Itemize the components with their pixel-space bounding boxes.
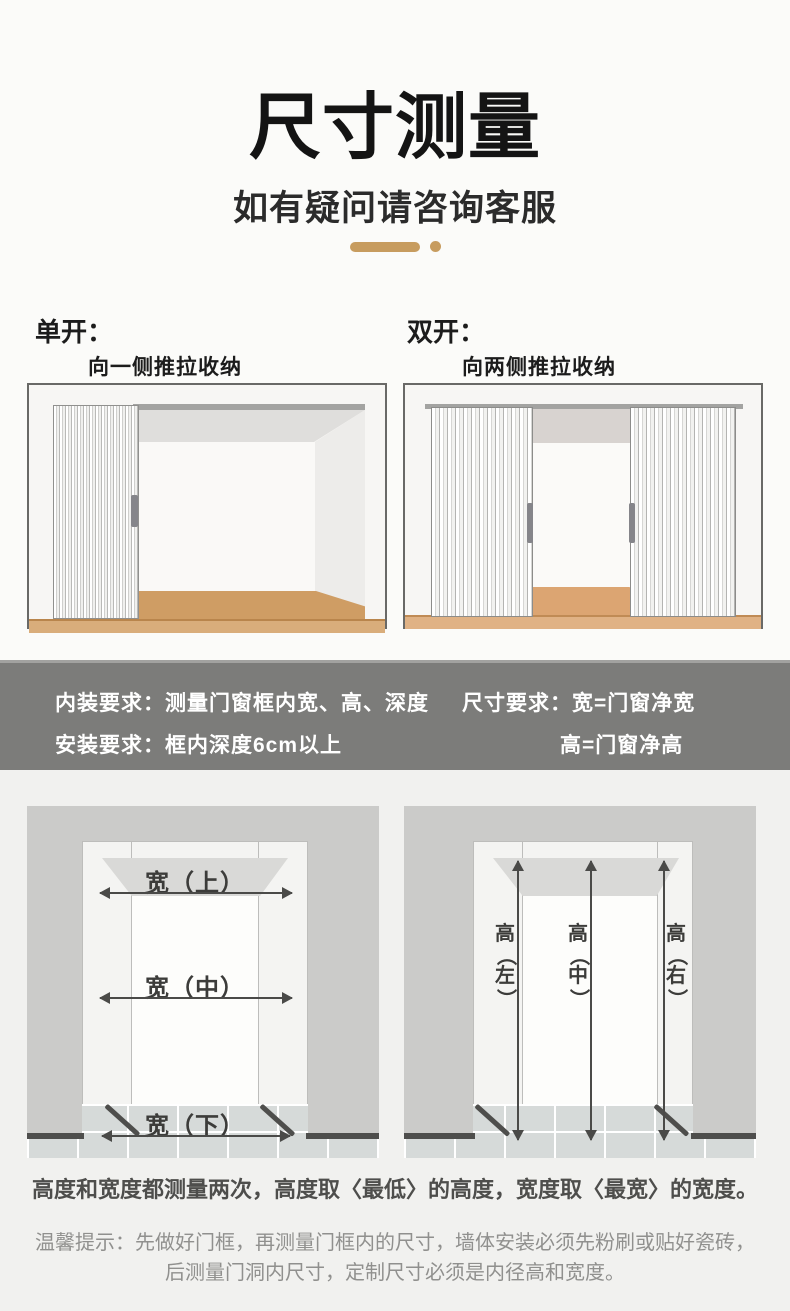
warm-tip-line2: 后测量门洞内尺寸，定制尺寸必须是内径高和宽度。 bbox=[0, 1256, 790, 1285]
back-wall bbox=[531, 443, 630, 587]
lintel-shadow bbox=[531, 409, 630, 443]
infographic-page: 尺寸测量 如有疑问请咨询客服 单开： 向一侧推拉收纳 双开： 向两侧推拉收纳 内… bbox=[0, 0, 790, 1311]
double-open-caption: 向两侧推拉收纳 bbox=[462, 351, 616, 381]
divider-bar bbox=[350, 242, 420, 252]
height-middle-label: 高（中） bbox=[563, 924, 593, 1009]
divider-dot bbox=[430, 241, 441, 252]
single-open-room-diagram bbox=[27, 383, 387, 629]
width-middle-arrow bbox=[100, 997, 292, 999]
install-requirement: 安装要求：框内深度6cm以上 bbox=[55, 729, 342, 759]
door-handle bbox=[131, 495, 138, 527]
accordion-door-right bbox=[630, 407, 736, 617]
single-open-label: 单开： bbox=[35, 312, 113, 349]
door-handle-right bbox=[629, 503, 635, 543]
page-title: 尺寸测量 bbox=[0, 68, 790, 173]
front-floor-strip bbox=[405, 615, 761, 629]
single-open-caption: 向一侧推拉收纳 bbox=[88, 351, 242, 381]
baseboard-right bbox=[691, 1133, 756, 1139]
baseboard-left bbox=[27, 1133, 84, 1139]
height-left-label: 高（左） bbox=[490, 924, 520, 1009]
door-track bbox=[133, 404, 365, 410]
double-open-label: 双开： bbox=[407, 312, 485, 349]
accordion-door-folded bbox=[53, 405, 139, 619]
baseboard-right bbox=[306, 1133, 379, 1139]
divider bbox=[0, 241, 790, 252]
door-handle-left bbox=[527, 503, 533, 543]
interior-requirement: 内装要求：测量门窗框内宽、高、深度 bbox=[55, 687, 429, 717]
baseboard-left bbox=[404, 1133, 475, 1139]
wall-right bbox=[693, 1104, 756, 1133]
front-floor-strip bbox=[29, 619, 385, 633]
width-measure-panel: 宽（上） 宽（中） 宽（下） bbox=[27, 806, 379, 1158]
wall-right bbox=[308, 1104, 379, 1133]
right-wall bbox=[315, 410, 365, 610]
requirements-band: 内装要求：测量门窗框内宽、高、深度 安装要求：框内深度6cm以上 尺寸要求：宽=… bbox=[0, 660, 790, 770]
double-open-room-diagram bbox=[403, 383, 763, 629]
back-wall bbox=[133, 442, 315, 591]
page-subtitle: 如有疑问请咨询客服 bbox=[0, 180, 790, 231]
warm-tip-line1: 温馨提示：先做好门框，再测量门框内的尺寸，墙体安装必须先粉刷或贴好瓷砖， bbox=[0, 1226, 790, 1255]
wall-left bbox=[27, 1104, 82, 1133]
height-requirement: 高=门窗净高 bbox=[560, 729, 683, 759]
measure-note: 高度和宽度都测量两次，高度取〈最低〉的高度，宽度取〈最宽〉的宽度。 bbox=[0, 1172, 790, 1204]
width-top-arrow bbox=[100, 892, 292, 894]
wall-left bbox=[404, 1104, 473, 1133]
size-requirement: 尺寸要求：宽=门窗净宽 bbox=[462, 687, 695, 717]
accordion-door-left bbox=[431, 407, 533, 617]
height-right-label: 高（右） bbox=[661, 924, 691, 1009]
height-measure-panel: 高（左） 高（中） 高（右） bbox=[404, 806, 756, 1158]
width-bottom-arrow bbox=[102, 1135, 290, 1137]
